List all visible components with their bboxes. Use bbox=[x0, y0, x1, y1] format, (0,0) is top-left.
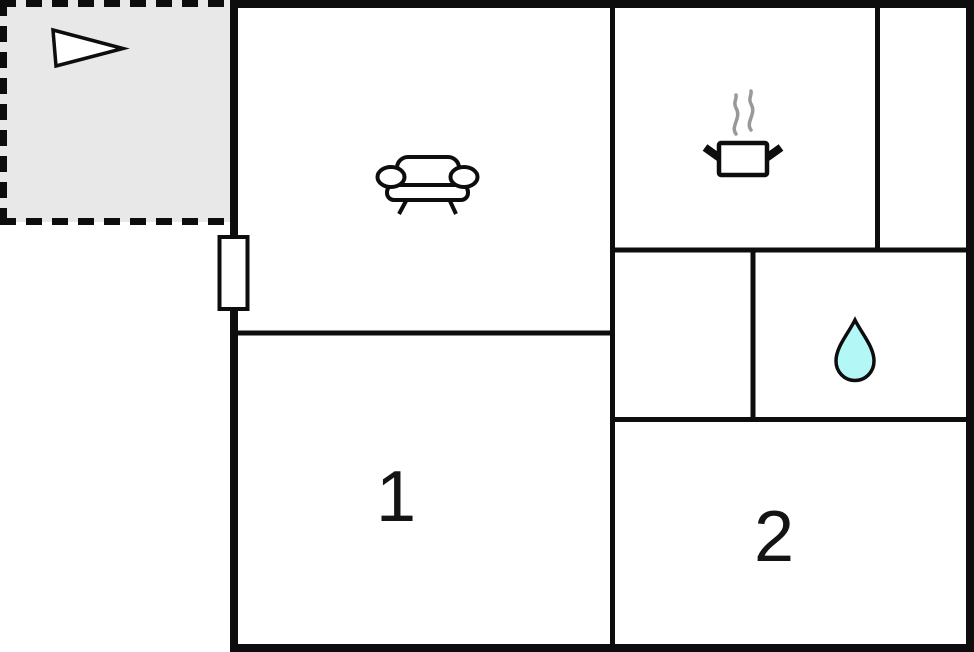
floor-plan: 1 2 bbox=[0, 0, 974, 652]
bedroom2-label: 2 bbox=[754, 497, 794, 577]
sofa-armrest-left bbox=[378, 167, 405, 187]
terrace-area bbox=[0, 0, 232, 222]
sofa-armrest-right bbox=[451, 167, 478, 187]
sofa-back bbox=[397, 157, 459, 187]
terrace bbox=[0, 0, 233, 225]
bedroom1-label: 1 bbox=[376, 457, 416, 537]
pot-body bbox=[719, 143, 767, 175]
window-marker bbox=[220, 237, 248, 309]
sofa-seat bbox=[387, 185, 468, 200]
floor-plan-page: 1 2 bbox=[0, 0, 974, 652]
